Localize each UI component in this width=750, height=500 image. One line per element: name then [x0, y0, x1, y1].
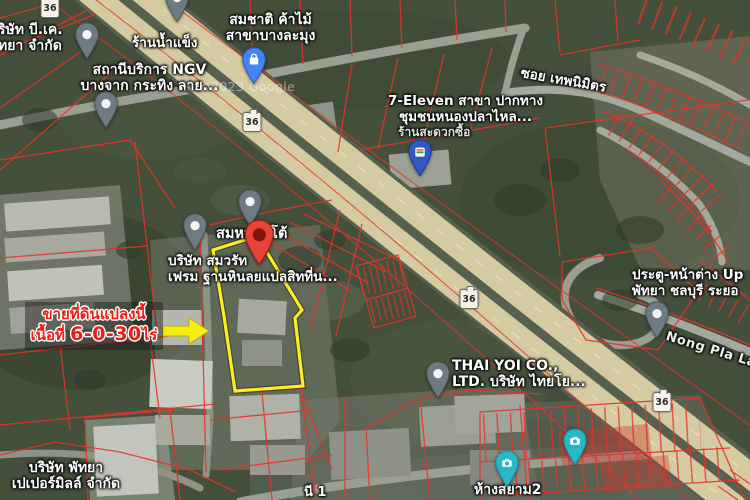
sale-annotation: ขายที่ดินแปลงนี้ เนื้อที่ 6-0-30ไร่: [25, 302, 163, 350]
place-pin-icon[interactable]: [74, 22, 100, 64]
map-overlay: ริษัท บี.เค.ัทยา จำกัดร้านน้ำแข็งสถานีบร…: [0, 0, 750, 500]
sale-annotation-line1: ขายที่ดินแปลงนี้: [27, 305, 161, 323]
place-pin-icon[interactable]: [644, 301, 670, 343]
camera-pin-icon[interactable]: [562, 428, 588, 470]
label-thai-yoi: THAI YOI CO.,LTD. บริษัท ไทยโย...: [452, 358, 586, 390]
camera-pin-icon[interactable]: [494, 450, 520, 492]
label-somchat-timber: สมชาติ ค้าไม้สาขาบางละมุง: [218, 12, 323, 44]
label-nong-pla-lai-road: Nong Pla Lai: [664, 330, 750, 373]
label-ice-shop: ร้านน้ำแข็ง: [132, 36, 197, 52]
place-pin-icon[interactable]: [93, 91, 119, 133]
red-marker-icon[interactable]: [243, 219, 276, 271]
label-soi-thep-nimit: ซอย เทพนิมิตร: [519, 66, 607, 96]
label-doors-windows-up: ประตู-หน้าต่าง Upพัทยา ชลบุรี ระยอ: [632, 268, 743, 299]
map-screenshot: ริษัท บี.เค.ัทยา จำกัดร้านน้ำแข็งสถานีบร…: [0, 0, 750, 500]
label-bk-company: ริษัท บี.เค.ัทยา จำกัด: [0, 22, 63, 54]
label-seven-eleven: 7-Eleven สาขา ปากทางชุมชนหนองปลาไหล...: [388, 94, 543, 125]
seven-eleven-pin-icon[interactable]: [407, 139, 433, 181]
label-partial-label-1: นี 1: [304, 486, 326, 500]
place-pin-icon[interactable]: [182, 213, 208, 255]
label-paper-mill: บริษัท พัทยาเปเปอร์มิลล์ จำกัด: [0, 460, 132, 492]
label-convenience-store: ร้านสะดวกซื้อ: [398, 126, 470, 140]
route-shield: 36: [653, 392, 672, 412]
route-shield: 36: [41, 0, 60, 18]
sale-area-value: 6-0-30: [70, 323, 142, 345]
sale-annotation-line2: เนื้อที่ 6-0-30ไร่: [27, 323, 161, 346]
place-pin-icon[interactable]: [164, 0, 190, 27]
route-shield: 36: [243, 112, 262, 132]
shopping-bag-pin-icon[interactable]: [241, 47, 267, 89]
place-pin-icon[interactable]: [425, 361, 451, 403]
route-shield: 36: [460, 289, 479, 309]
